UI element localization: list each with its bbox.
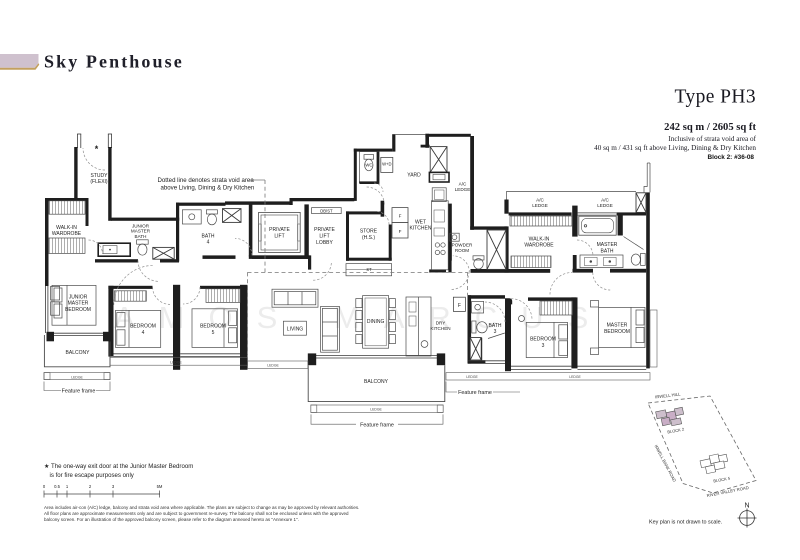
svg-text:Feature frame: Feature frame — [62, 389, 96, 395]
svg-text:DINING: DINING — [367, 319, 385, 325]
svg-text:AMOS MARCUS: AMOS MARCUS — [114, 300, 612, 335]
svg-text:LEDGE: LEDGE — [170, 360, 182, 364]
svg-text:YARD: YARD — [407, 172, 421, 178]
svg-text:4: 4 — [207, 240, 210, 246]
svg-text:2: 2 — [89, 484, 92, 489]
svg-text:POWDER: POWDER — [452, 243, 473, 248]
svg-text:3: 3 — [542, 343, 545, 349]
svg-text:0: 0 — [43, 484, 46, 489]
svg-text:BEDROOM: BEDROOM — [130, 324, 156, 330]
svg-text:F: F — [399, 214, 402, 219]
svg-text:1: 1 — [66, 484, 69, 489]
svg-text:BLOCK 2: BLOCK 2 — [667, 426, 685, 434]
svg-text:(FLEXI): (FLEXI) — [90, 179, 108, 185]
svg-text:KITCHEN: KITCHEN — [430, 326, 450, 331]
svg-text:4: 4 — [142, 330, 145, 336]
svg-text:IRWELL HILL: IRWELL HILL — [655, 391, 681, 399]
svg-text:N: N — [744, 503, 749, 510]
svg-text:BLOCK 5: BLOCK 5 — [713, 475, 731, 483]
svg-text:Feature frame: Feature frame — [360, 422, 394, 428]
svg-text:ROOM: ROOM — [455, 248, 469, 253]
svg-text:MASTER: MASTER — [607, 323, 628, 329]
svg-text:Feature frame: Feature frame — [458, 390, 492, 396]
svg-text:F: F — [399, 229, 402, 234]
svg-text:BALCONY: BALCONY — [364, 379, 389, 385]
svg-text:Type PH3: Type PH3 — [675, 86, 756, 107]
svg-text:5M: 5M — [157, 484, 163, 489]
svg-text:WARDROBE: WARDROBE — [52, 231, 82, 237]
svg-text:IRWELL BANK ROAD: IRWELL BANK ROAD — [653, 444, 677, 483]
svg-text:LEDGE: LEDGE — [267, 364, 279, 368]
svg-text:MASTER: MASTER — [68, 301, 89, 307]
svg-text:ST: ST — [366, 267, 372, 272]
svg-text:242 sq m / 2605 sq ft: 242 sq m / 2605 sq ft — [664, 122, 756, 133]
svg-text:BEDROOM: BEDROOM — [65, 307, 91, 313]
svg-text:WC: WC — [365, 163, 372, 168]
svg-text:A/C: A/C — [601, 198, 609, 203]
svg-text:★ The one-way exit door at the: ★ The one-way exit door at the Junior Ma… — [44, 463, 193, 470]
svg-text:DB/ST: DB/ST — [320, 208, 333, 213]
svg-text:LEDGE: LEDGE — [370, 408, 382, 412]
svg-text:LIFT: LIFT — [274, 234, 284, 240]
svg-text:PRIVATE: PRIVATE — [314, 227, 335, 233]
svg-text:BEDROOM: BEDROOM — [200, 324, 226, 330]
svg-text:F: F — [458, 303, 461, 309]
svg-text:LEDGE: LEDGE — [455, 187, 471, 192]
svg-text:DRY: DRY — [436, 321, 446, 326]
svg-text:3: 3 — [112, 484, 115, 489]
svg-text:balcony screen. For an illustr: balcony screen. For an illustration of t… — [44, 517, 299, 522]
svg-text:LEDGE: LEDGE — [597, 203, 613, 208]
svg-text:A/C: A/C — [536, 198, 544, 203]
svg-text:LOBBY: LOBBY — [316, 240, 333, 246]
svg-text:W+D: W+D — [382, 161, 391, 166]
svg-text:LIFT: LIFT — [319, 234, 329, 240]
svg-text:LEDGE: LEDGE — [532, 203, 548, 208]
svg-text:BALCONY: BALCONY — [66, 350, 91, 356]
svg-text:BEDROOM: BEDROOM — [604, 329, 630, 335]
svg-text:JUNIOR: JUNIOR — [69, 294, 88, 300]
svg-text:BEDROOM: BEDROOM — [530, 337, 556, 343]
svg-text:WARDROBE: WARDROBE — [524, 243, 554, 249]
svg-text:MASTER: MASTER — [597, 242, 618, 248]
svg-text:Sky Penthouse: Sky Penthouse — [44, 52, 184, 72]
svg-text:above Living, Dining & Dry Kit: above Living, Dining & Dry Kitchen — [161, 185, 255, 192]
svg-text:Inclusive of strata void area: Inclusive of strata void area of — [668, 135, 756, 143]
svg-text:Block 2: #36-08: Block 2: #36-08 — [707, 154, 754, 161]
svg-text:KITCHEN: KITCHEN — [410, 226, 432, 232]
svg-text:*: * — [95, 144, 99, 154]
svg-text:STORE: STORE — [360, 229, 378, 235]
svg-text:5: 5 — [212, 330, 215, 336]
svg-text:RIVER VALLEY ROAD: RIVER VALLEY ROAD — [706, 485, 749, 498]
svg-text:Key plan is not drawn to scale: Key plan is not drawn to scale. — [649, 520, 722, 526]
svg-text:0.5: 0.5 — [54, 484, 60, 489]
svg-text:40 sq m / 431 sq ft above Livi: 40 sq m / 431 sq ft above Living, Dining… — [594, 144, 756, 152]
svg-text:BATH: BATH — [601, 248, 614, 254]
svg-text:LEDGE: LEDGE — [466, 375, 478, 379]
svg-text:LIVING: LIVING — [287, 327, 304, 333]
svg-text:PRIVATE: PRIVATE — [269, 227, 290, 233]
svg-text:BATH: BATH — [135, 234, 147, 239]
svg-text:(H.S.): (H.S.) — [362, 235, 375, 241]
svg-text:LEDGE: LEDGE — [569, 375, 581, 379]
svg-text:is for fire escape purposes on: is for fire escape purposes only — [50, 472, 135, 479]
svg-text:Dotted line denotes strata voi: Dotted line denotes strata void area — [158, 177, 255, 184]
svg-text:All floor plans are approximat: All floor plans are approximate measurem… — [44, 511, 349, 516]
svg-text:3: 3 — [494, 329, 497, 335]
svg-text:Area includes air-con (A/C) le: Area includes air-con (A/C) ledge, balco… — [44, 505, 359, 510]
svg-text:A/C: A/C — [459, 181, 467, 186]
svg-text:LEDGE: LEDGE — [71, 375, 83, 379]
